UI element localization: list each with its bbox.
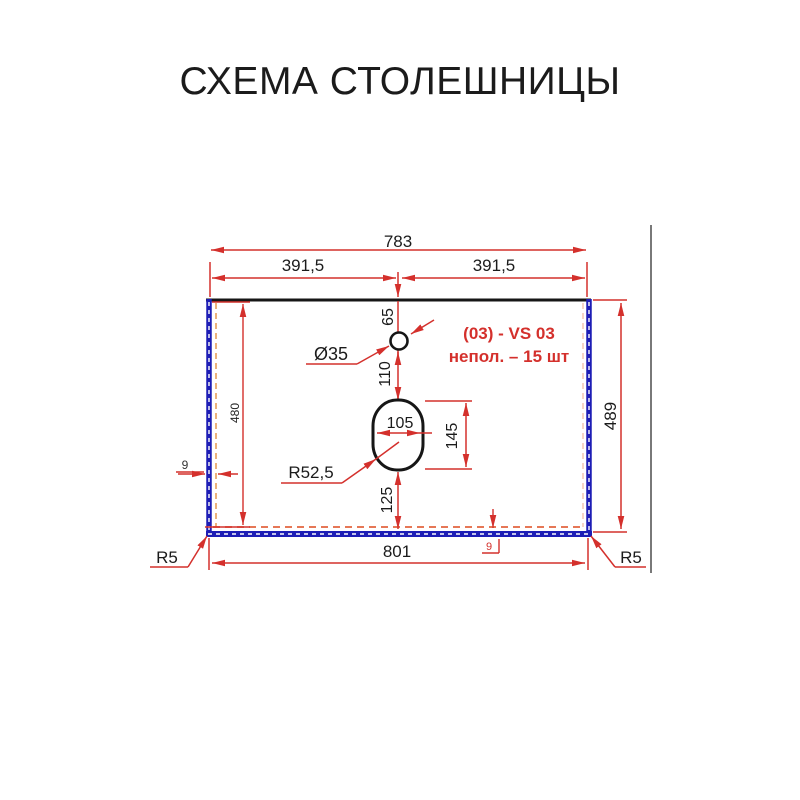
dimension-391-5	[212, 272, 585, 297]
dim-783-label: 783	[384, 232, 412, 251]
dim-9-bottom-label: 9	[486, 541, 492, 553]
sink-cutout-oval	[373, 400, 423, 470]
annotation-line1: (03) - VS 03	[463, 324, 555, 343]
countertop-scheme-page: СХЕМА СТОЛЕШНИЦЫ 783	[0, 0, 800, 800]
radius-leader-seg2	[376, 442, 399, 459]
sink-radius-label: R52,5	[288, 463, 333, 482]
dim-3915-right-label: 391,5	[473, 256, 516, 275]
dim-145-label: 145	[444, 423, 461, 450]
faucet-diameter-label: Ø35	[314, 344, 348, 364]
annotation-leader	[411, 320, 434, 334]
faucet-hole-circle	[391, 333, 408, 350]
dim-110-label: 110	[377, 361, 394, 387]
radius-leader-seg1	[342, 459, 376, 483]
countertop-drawing: 783 391,5 391,5 65 110 Ø35 (03) - VS 03 …	[0, 0, 800, 800]
corner-r5-left-label: R5	[156, 548, 178, 567]
dim-480-label: 480	[228, 403, 242, 423]
dim-65-label: 65	[380, 308, 397, 326]
dim-3915-left-label: 391,5	[282, 256, 325, 275]
dim-125-label: 125	[379, 487, 396, 514]
dim-801-label: 801	[383, 542, 411, 561]
corner-r5-right-label: R5	[620, 548, 642, 567]
annotation-line2: непол. – 15 шт	[449, 347, 570, 366]
dim-489-label: 489	[601, 402, 620, 430]
dim-9-left-label: 9	[182, 458, 189, 472]
dim-105-label: 105	[387, 415, 414, 432]
r5-right-leader	[591, 536, 615, 567]
r5-left-leader	[188, 536, 207, 567]
